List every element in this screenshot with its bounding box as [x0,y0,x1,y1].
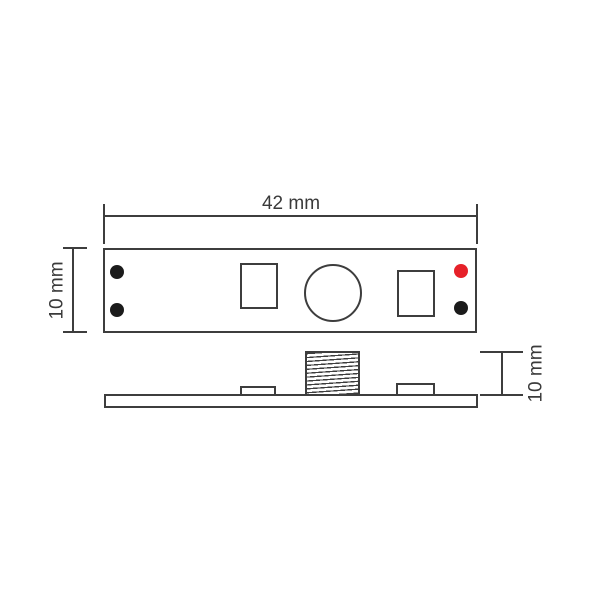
side-view-potentiometer-hatched [305,351,360,396]
solder-pad-dot-top-right-red [454,264,468,278]
side-view-board-outline [104,394,478,408]
height-dimension-label: 10 mm [48,258,67,324]
knob-circle [304,264,362,322]
height-dimension-tick-top [63,247,87,249]
width-dimension-line [103,215,478,217]
height-dimension-tick-bottom [63,331,87,333]
solder-pad-dot-bottom-right [454,301,468,315]
solder-pad-dot-top-left [110,265,124,279]
technical-drawing: 42 mm 10 mm 10 mm [0,0,600,600]
width-dimension-label: 42 mm [231,194,351,213]
width-dimension-tick-right [476,204,478,244]
height-dimension-line [72,248,74,333]
side-height-dimension-line [501,351,503,396]
component-square-right [397,270,435,317]
solder-pad-dot-bottom-left [110,303,124,317]
side-height-dimension-tick-bottom [480,394,523,396]
component-square-left [240,263,278,309]
side-height-dimension-label: 10 mm [527,341,546,407]
width-dimension-tick-left [103,204,105,244]
